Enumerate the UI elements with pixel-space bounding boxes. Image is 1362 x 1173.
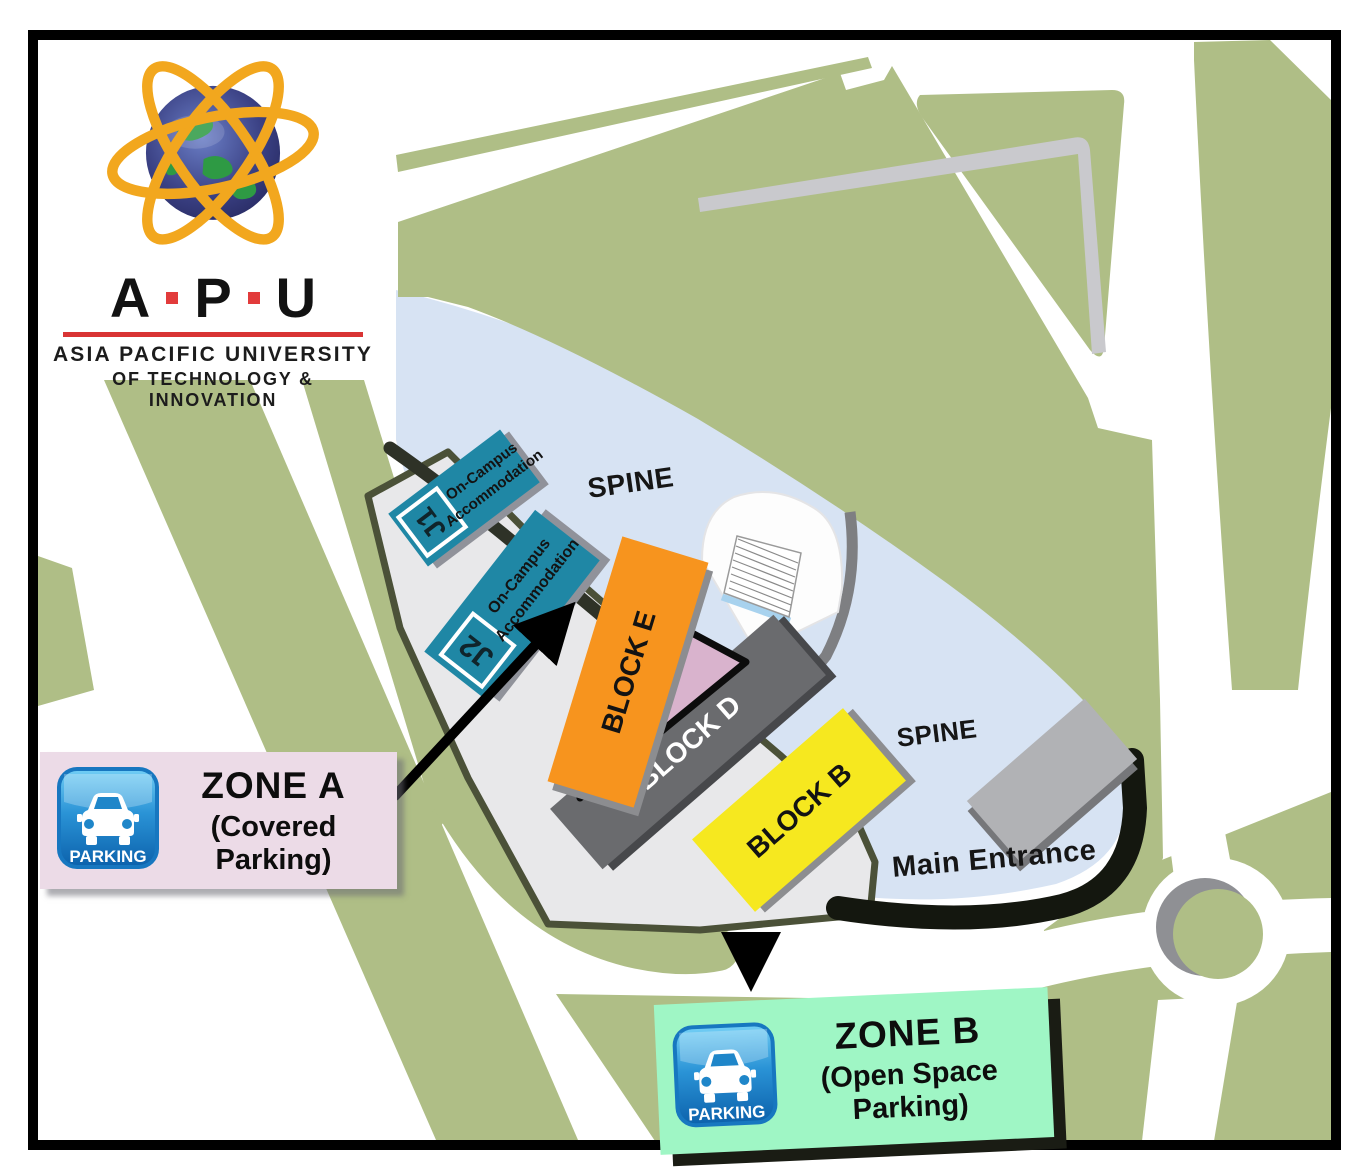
apu-red-rule xyxy=(63,332,363,337)
apu-dot xyxy=(166,292,178,304)
apu-globe-icon xyxy=(103,48,323,263)
zone-b-card: PARKING ZONE B (Open Space Parking) xyxy=(654,987,1054,1155)
parking-icon: PARKING xyxy=(56,766,160,870)
zone-a-parking-icon: PARKING xyxy=(56,766,160,875)
zone-a-title: ZONE A xyxy=(160,765,387,807)
parking-icon: PARKING xyxy=(671,1020,780,1129)
apu-logo: A P U ASIA PACIFIC UNIVERSITY OF TECHNOL… xyxy=(48,48,378,411)
apu-name-line2: OF TECHNOLOGY & INNOVATION xyxy=(48,369,378,411)
apu-letter: U xyxy=(276,270,316,326)
parking-icon-label: PARKING xyxy=(69,847,146,866)
zone-a-card: PARKING ZONE A (Covered Parking) xyxy=(40,752,397,889)
campus-parking-map: BLOCK D BLOCK E BLOCK B J1 On-Campus xyxy=(0,0,1362,1173)
apu-acronym: A P U xyxy=(48,270,378,326)
zone-b-title: ZONE B xyxy=(775,1007,1041,1061)
apu-letter: P xyxy=(194,270,231,326)
roundabout-island xyxy=(1173,889,1263,979)
zone-a-subtitle: (Covered Parking) xyxy=(160,811,387,877)
apu-name-line1: ASIA PACIFIC UNIVERSITY xyxy=(48,343,378,367)
apu-letter: A xyxy=(110,270,150,326)
parking-icon-label: PARKING xyxy=(688,1102,766,1124)
apu-dot xyxy=(248,292,260,304)
zone-b-parking-icon: PARKING xyxy=(671,1020,780,1134)
zone-b-subtitle: (Open Space Parking) xyxy=(777,1053,1044,1131)
